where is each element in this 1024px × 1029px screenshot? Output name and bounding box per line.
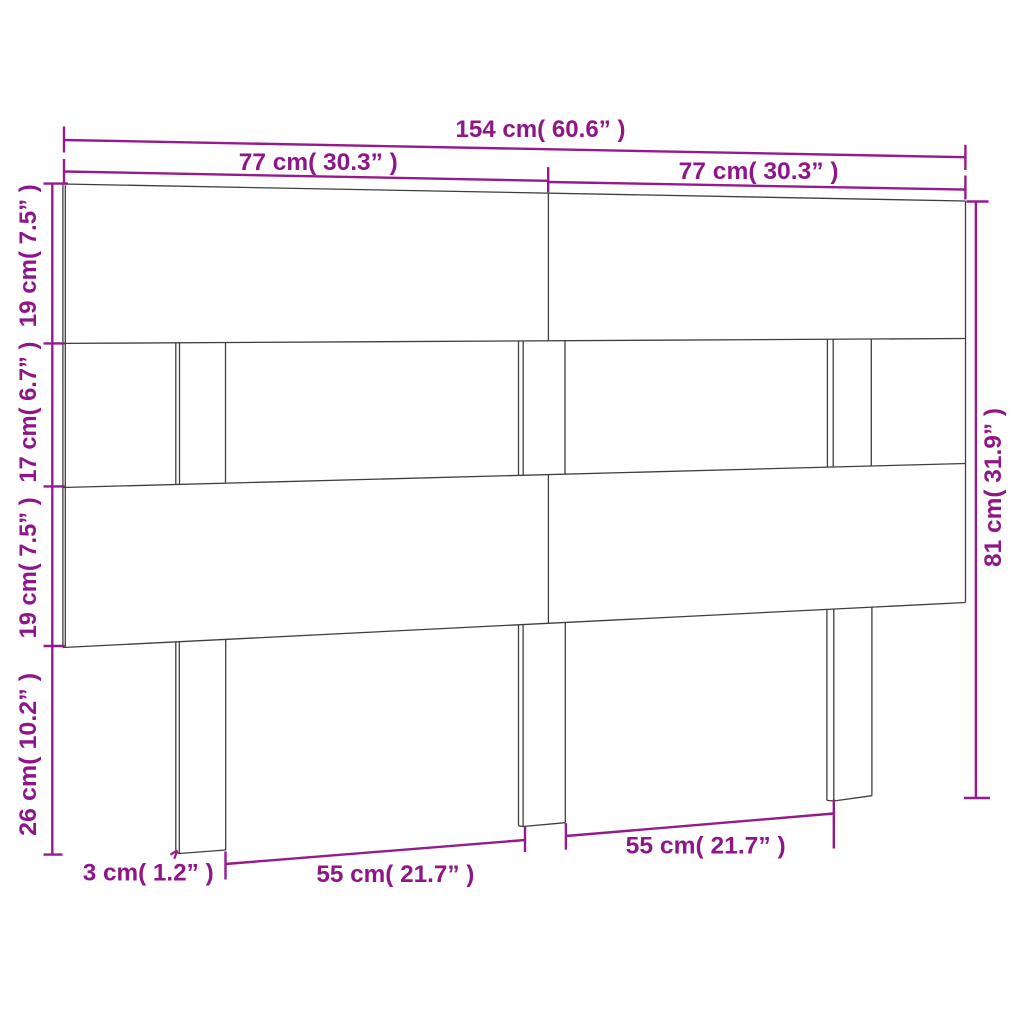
svg-text:55 cm( 21.7” ): 55 cm( 21.7” )	[626, 833, 786, 860]
svg-text:3 cm( 1.2” ): 3 cm( 1.2” )	[83, 860, 214, 887]
svg-text:154 cm( 60.6” ): 154 cm( 60.6” )	[456, 116, 626, 143]
svg-text:55 cm( 21.7” ): 55 cm( 21.7” )	[316, 861, 474, 888]
svg-text:19 cm( 7.5” ): 19 cm( 7.5” )	[15, 497, 42, 638]
svg-text:17 cm( 6.7” ): 17 cm( 6.7” )	[15, 342, 42, 483]
svg-text:77 cm( 30.3” ): 77 cm( 30.3” )	[679, 158, 839, 185]
svg-text:77 cm( 30.3” ): 77 cm( 30.3” )	[239, 149, 398, 176]
svg-text:19 cm( 7.5” ): 19 cm( 7.5” )	[15, 184, 42, 327]
svg-text:26 cm( 10.2” ): 26 cm( 10.2” )	[15, 673, 42, 836]
svg-text:81 cm( 31.9” ): 81 cm( 31.9” )	[980, 408, 1007, 567]
